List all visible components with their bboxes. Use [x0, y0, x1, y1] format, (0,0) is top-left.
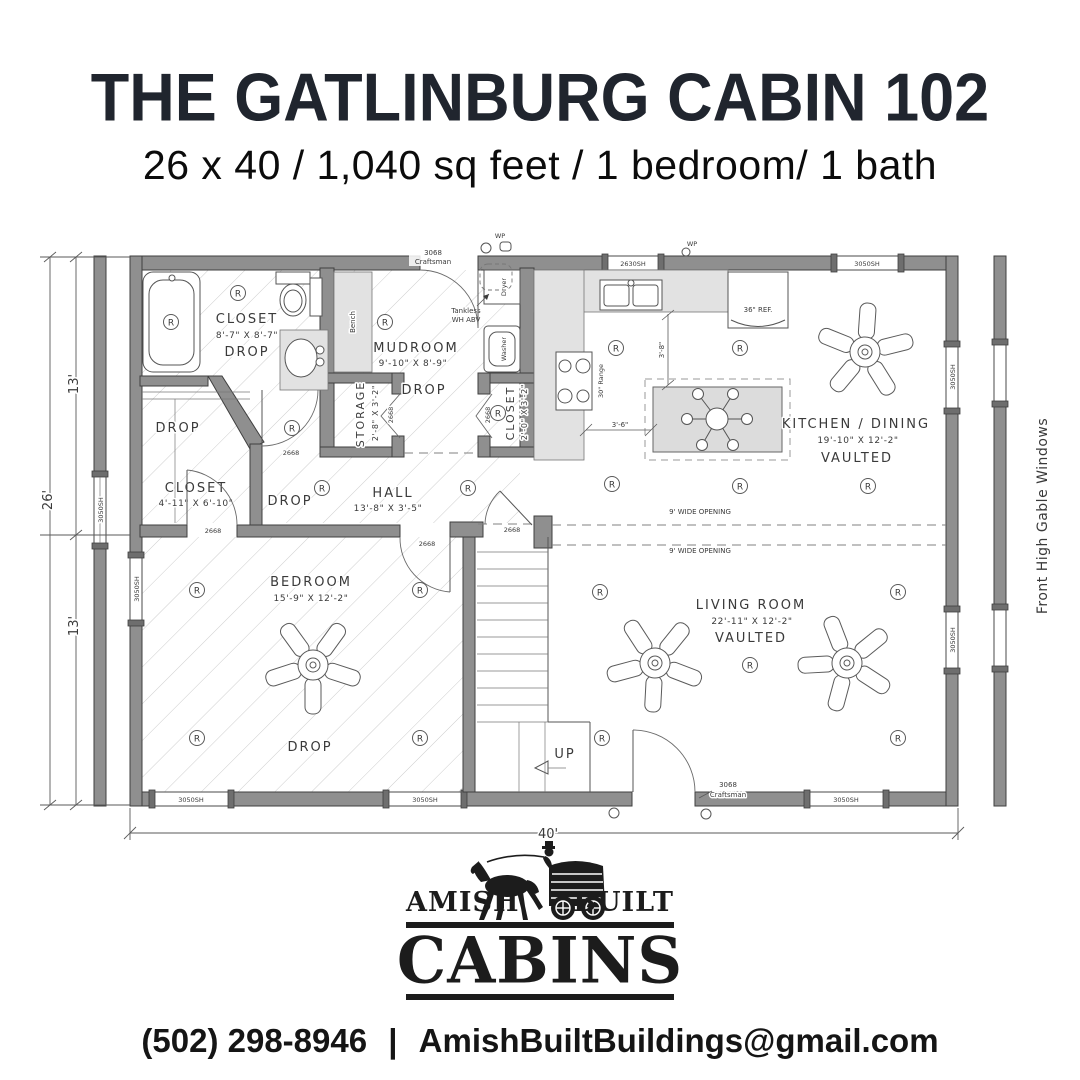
window-kitchen-right: 3050SH — [944, 341, 960, 414]
door-label: 3068 — [424, 249, 442, 257]
page-title: THE GATLINBURG CABIN 102 — [0, 59, 1080, 137]
separator: | — [388, 1022, 397, 1059]
logo-word-cabins: CABINS — [397, 929, 683, 992]
logo-word-built: BUILT — [573, 887, 674, 918]
svg-text:3'-8": 3'-8" — [658, 342, 666, 359]
room-dims: 2'-8" X 3'-2" — [371, 385, 380, 441]
kitchen-sink — [600, 280, 662, 310]
ceiling-note: DROP — [267, 494, 312, 509]
email-address: AmishBuiltBuildings@gmail.com — [419, 1022, 939, 1059]
window-label: 3050SH — [833, 796, 859, 804]
floor-plan: R 3050SH — [0, 225, 1080, 870]
porch-light-icon — [701, 809, 711, 819]
left-gable-wall: 3050SH — [92, 256, 108, 806]
ceiling-note: DROP — [401, 383, 446, 398]
ceiling-fan-living-2 — [787, 607, 906, 723]
door-label: 2668 — [205, 527, 222, 535]
refrigerator: 36" REF. — [728, 272, 788, 328]
wide-opening-label: 9' WIDE OPENING — [669, 508, 731, 516]
contact-line: (502) 298-8946 | AmishBuiltBuildings@gma… — [0, 1022, 1080, 1060]
kitchen-island — [645, 379, 790, 460]
ceiling-note: DROP — [224, 345, 269, 360]
window-living: 3050SH — [804, 790, 889, 808]
svg-text:Washer: Washer — [500, 337, 508, 361]
door-label: 2668 — [387, 407, 395, 424]
fridge-label: 36" REF. — [744, 306, 773, 314]
window-top-right: 3050SH — [831, 254, 904, 272]
up-label: UP — [554, 747, 575, 762]
room-dims: 13'-8" X 3'-5" — [354, 504, 423, 514]
room-name: BEDROOM — [270, 575, 352, 590]
door-style-label: Craftsman — [415, 258, 451, 266]
ceiling-note: VAULTED — [715, 631, 787, 646]
exterior-outlet-icon — [500, 242, 511, 251]
ceiling-fan-kitchen — [796, 286, 931, 421]
room-dims: 4'-11" X 6'-10" — [159, 499, 234, 509]
room-dims: 9'-10" X 8'-9" — [379, 359, 448, 369]
window-label: 3050SH — [949, 627, 957, 653]
window-bedroom-2: 3050SH — [383, 790, 467, 808]
window-label: 3050SH — [854, 260, 880, 268]
dryer: Dryer — [484, 270, 520, 304]
window-label: 2630SH — [620, 260, 646, 268]
room-dims: 2'-0" X 3'-2" — [520, 384, 529, 440]
tub-faucet-icon — [169, 275, 175, 281]
porch-light-icon — [481, 243, 491, 253]
range: 30" Range — [556, 352, 605, 410]
living-room: LIVING ROOM 22'-11" X 12'-2" VAULTED — [696, 598, 806, 646]
window-kitchen-sink: 2630SH — [602, 254, 664, 272]
bench-label: Bench — [349, 311, 357, 333]
logo-lockup: AMISH — [406, 856, 674, 920]
room-dims: 19'-10" X 12'-2" — [817, 436, 898, 446]
door-style-label: Craftsman — [710, 791, 746, 799]
page-subtitle: 26 x 40 / 1,040 sq feet / 1 bedroom/ 1 b… — [0, 142, 1080, 189]
ceiling-note: DROP — [287, 740, 332, 755]
right-gable-wall: Front High Gable Windows — [992, 256, 1051, 806]
ceiling-fan-living-1 — [595, 604, 711, 723]
wp-label: WP — [495, 232, 505, 240]
room-dims: 15'-9" X 12'-2" — [274, 594, 349, 604]
door-label: 3068 — [719, 781, 737, 789]
window-label: 3050SH — [133, 576, 141, 602]
amish-built-cabins-logo: AMISH — [0, 856, 1080, 1002]
porch-light-icon — [609, 808, 619, 818]
room-dims: 8'-7" X 8'-7" — [216, 331, 278, 341]
depth-lower: 13' — [67, 616, 82, 636]
room-name: MUDROOM — [373, 341, 458, 356]
svg-text:Dryer: Dryer — [500, 278, 508, 297]
tankless-note-line2: WH ABV — [452, 316, 481, 324]
phone-number: (502) 298-8946 — [141, 1022, 367, 1059]
range-label: 30" Range — [597, 364, 605, 398]
room-name: STORAGE — [354, 381, 367, 447]
window-label: 3050SH — [97, 497, 105, 523]
window-bedroom-1: 3050SH — [149, 790, 234, 808]
room-name: CLOSET — [216, 312, 279, 327]
gable-windows-note: Front High Gable Windows — [1035, 418, 1051, 614]
up-arrow-icon — [535, 761, 548, 774]
room-name: LIVING ROOM — [696, 598, 806, 613]
door-label: 2668 — [419, 540, 436, 548]
window-label: 3050SH — [178, 796, 204, 804]
window-living-right: 3050SH — [944, 606, 960, 674]
room-name: HALL — [372, 486, 413, 501]
bath-cabinet — [310, 278, 322, 316]
washer: Washer — [484, 326, 520, 372]
window-bedroom-left: 3050SH — [128, 552, 144, 626]
room-name: KITCHEN / DINING — [782, 417, 930, 432]
wp-label: WP — [687, 240, 697, 248]
stairs: UP — [477, 537, 590, 792]
front-entry-door: 3068 Craftsman — [633, 730, 746, 799]
ceiling-note: VAULTED — [821, 451, 893, 466]
svg-text:3'-6": 3'-6" — [612, 421, 629, 429]
depth-upper: 13' — [67, 374, 82, 394]
door-label: 2668 — [283, 449, 300, 457]
room-dims: 22'-11" X 12'-2" — [711, 617, 792, 627]
ceiling-note: DROP — [155, 421, 200, 436]
door-label: 2668 — [504, 526, 521, 534]
overall-depth: 26' — [41, 490, 56, 510]
wide-opening-label: 9' WIDE OPENING — [669, 547, 731, 555]
window-label: 3050SH — [412, 796, 438, 804]
vanity-sink — [280, 330, 328, 390]
window-label: 3050SH — [949, 364, 957, 390]
gable-window: 3050SH — [92, 471, 108, 549]
exterior-outlet-icon — [682, 248, 690, 256]
